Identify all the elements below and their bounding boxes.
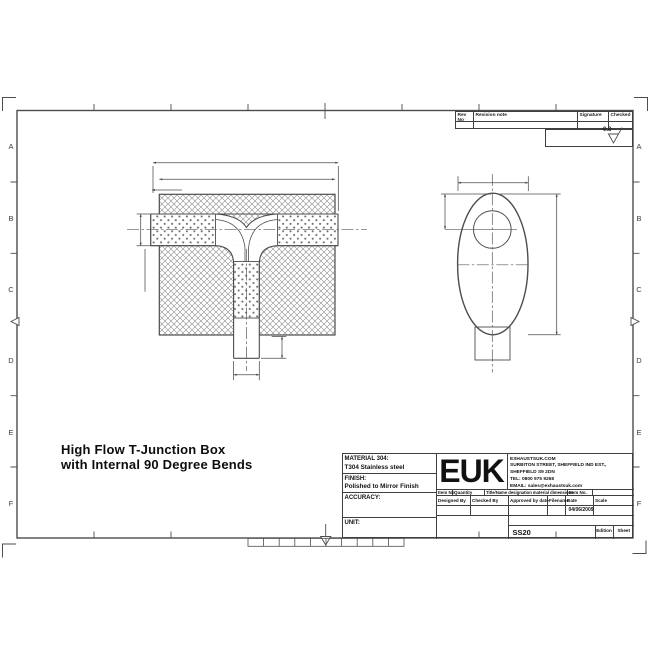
drawing-lineart	[0, 0, 650, 650]
drawing-title-line2: with Internal 90 Degree Bends	[61, 458, 252, 473]
date-label: Date	[566, 496, 593, 504]
title-block: MATERIAL 304: T304 Stainless steel FINIS…	[342, 453, 634, 538]
drawing-title: High Flow T-Junction Box with Internal 9…	[61, 443, 252, 472]
dimensions-side	[441, 176, 561, 334]
strip-item-no2: Item No.	[568, 490, 593, 497]
filename-cell: Filename	[548, 496, 566, 516]
strip-title: Title/Name designation material dimensio…	[485, 490, 568, 497]
row-label: A	[634, 142, 644, 151]
strip-item-no: Item No	[437, 490, 453, 497]
drawing-number-cell: SS20	[509, 526, 596, 539]
bottom-left-empty-cell	[437, 516, 509, 539]
finish-label: FINISH:	[343, 474, 436, 484]
row-label: D	[634, 356, 644, 365]
drawing-title-line1: High Flow T-Junction Box	[61, 443, 252, 458]
revision-empty-cell	[456, 121, 474, 129]
material-value: T304 Stainless steel	[343, 464, 436, 472]
material-label: MATERIAL 304:	[343, 454, 436, 464]
right-center-mark-icon	[631, 318, 639, 326]
row-label: E	[6, 428, 16, 437]
side-end-view	[441, 174, 561, 373]
scale-cell: Scale	[594, 496, 635, 516]
bottom-spacer-cell	[509, 516, 635, 526]
drawing-sheet: A B C D E F A B C D E F Rev No Revision …	[0, 0, 650, 650]
row-label: C	[6, 285, 16, 294]
revision-col-checked: Checked	[609, 112, 634, 122]
company-info: EXHAUSTSUK.COM SURBITON STREET, SHEFFIEL…	[508, 454, 635, 490]
row-label: E	[634, 428, 644, 437]
revision-col-signature: Signature	[578, 112, 609, 122]
revision-col-note: Revision note	[474, 112, 578, 122]
row-label: B	[6, 214, 16, 223]
row-label: F	[6, 499, 16, 508]
checked-by-cell: Checked By	[471, 496, 509, 516]
revision-empty-cell	[474, 121, 578, 129]
sheet-cell: Sheet	[614, 526, 635, 539]
date-cell: Date 04/06/2009	[566, 496, 594, 516]
strip-quantity: Quantity	[453, 490, 485, 497]
accuracy-cell: ACCURACY:	[343, 493, 437, 518]
row-label: D	[6, 356, 16, 365]
finish-value: Polished to Mirror Finish	[343, 483, 436, 491]
unit-label: UNIT:	[343, 518, 436, 528]
surface-finish-value: 0.8	[603, 127, 611, 133]
scale-bar	[248, 538, 404, 546]
row-label: A	[6, 142, 16, 151]
left-center-mark-icon	[11, 318, 19, 326]
accuracy-label: ACCURACY:	[343, 493, 436, 503]
row-label: F	[634, 499, 644, 508]
row-label: B	[634, 214, 644, 223]
finish-cell: FINISH: Polished to Mirror Finish	[343, 474, 437, 493]
front-section-view	[127, 163, 367, 381]
header-underline	[437, 505, 635, 506]
row-label: C	[634, 285, 644, 294]
strip-empty	[593, 490, 635, 497]
designed-by-cell: Designed By	[437, 496, 471, 516]
edition-cell: Edition	[596, 526, 614, 539]
surface-finish-box: 0.8	[545, 129, 633, 147]
centerlines-side	[457, 174, 528, 373]
company-logo: EUK	[437, 454, 508, 490]
approved-by-cell: Approved by date	[509, 496, 548, 516]
unit-cell: UNIT:	[343, 518, 437, 539]
material-cell: MATERIAL 304: T304 Stainless steel	[343, 454, 437, 474]
revision-col-rev-no: Rev No	[456, 112, 474, 122]
